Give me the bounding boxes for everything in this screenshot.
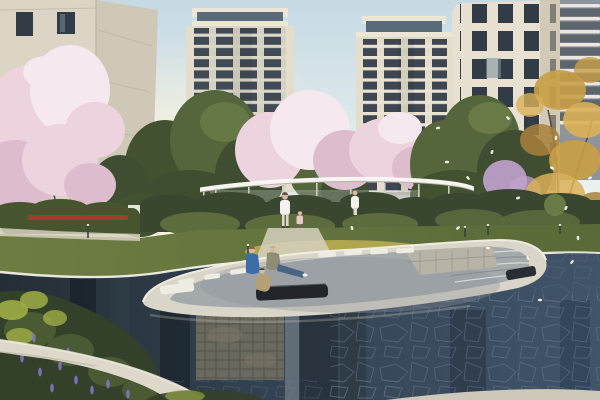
falling-petal	[445, 161, 449, 164]
purple-flower	[90, 386, 94, 395]
purple-flower	[106, 380, 110, 389]
tower-a-crown-glass	[197, 12, 283, 21]
building-right-window-lit	[486, 58, 501, 78]
bollard-post	[87, 224, 89, 238]
bollard-lamp	[247, 244, 249, 246]
purple-flower	[126, 390, 130, 399]
building-left-window	[16, 12, 33, 36]
tower-b-crown-glass	[366, 21, 442, 32]
red-flower-strip	[28, 215, 128, 220]
purple-flower	[50, 384, 54, 393]
purple-flower	[74, 376, 78, 385]
building-left-window	[57, 12, 75, 34]
purple-flower	[58, 362, 62, 371]
purple-flower	[38, 368, 42, 377]
rendering-canvas	[0, 0, 600, 400]
topiary-ball	[544, 194, 566, 216]
bollard-lamp	[464, 226, 466, 228]
purple-flower	[32, 334, 36, 343]
submerged-stone-wall	[196, 314, 284, 380]
bollard-lamp	[559, 224, 561, 226]
bollard-lamp	[87, 224, 89, 226]
bollard-lamp	[487, 224, 489, 226]
architectural-rendering	[0, 0, 600, 400]
